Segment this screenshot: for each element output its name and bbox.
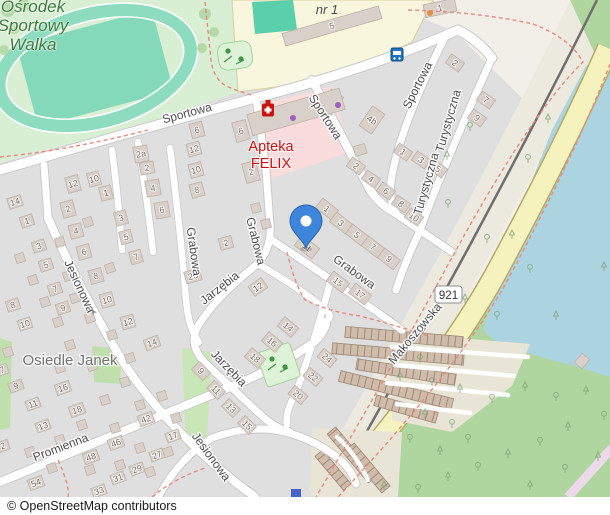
shop-dot-icon xyxy=(427,10,433,16)
building: 12 xyxy=(186,141,202,157)
neighbourhood-label: Osiedle Janek xyxy=(22,352,118,369)
map-canvas[interactable]: 514c4b6121086222a24612102143657810121413… xyxy=(0,0,610,515)
building-unnamed xyxy=(250,202,261,213)
building-unnamed xyxy=(260,218,271,229)
building: 12 xyxy=(120,314,136,330)
building: 2 xyxy=(139,161,155,175)
building: 6 xyxy=(154,201,171,219)
attribution-link[interactable]: © OpenStreetMap contributors xyxy=(7,499,177,513)
road-ref-badge: 921 xyxy=(435,286,462,303)
shop-dot-icon xyxy=(290,115,296,121)
map-viewport[interactable]: 514c4b6121086222a24612102143657810121413… xyxy=(0,0,610,515)
building: 2a xyxy=(133,145,150,163)
pharmacy-name-line1: Apteka xyxy=(248,139,294,155)
house-number: 2a xyxy=(135,148,147,160)
pharmacy-name-line2: FELIX xyxy=(251,156,292,172)
building: 4 xyxy=(145,179,162,197)
poi-square-icon xyxy=(291,489,301,497)
bus-stop-icon xyxy=(391,48,403,61)
shop-dot-icon xyxy=(335,102,341,108)
svg-text:921: 921 xyxy=(439,290,458,302)
attribution-bar: © OpenStreetMap contributors xyxy=(0,497,610,515)
sports-centre-label: Ośrodek Sportowy Walka xyxy=(0,0,88,54)
pool xyxy=(252,0,297,34)
school-number-label: nr 1 xyxy=(316,2,338,17)
